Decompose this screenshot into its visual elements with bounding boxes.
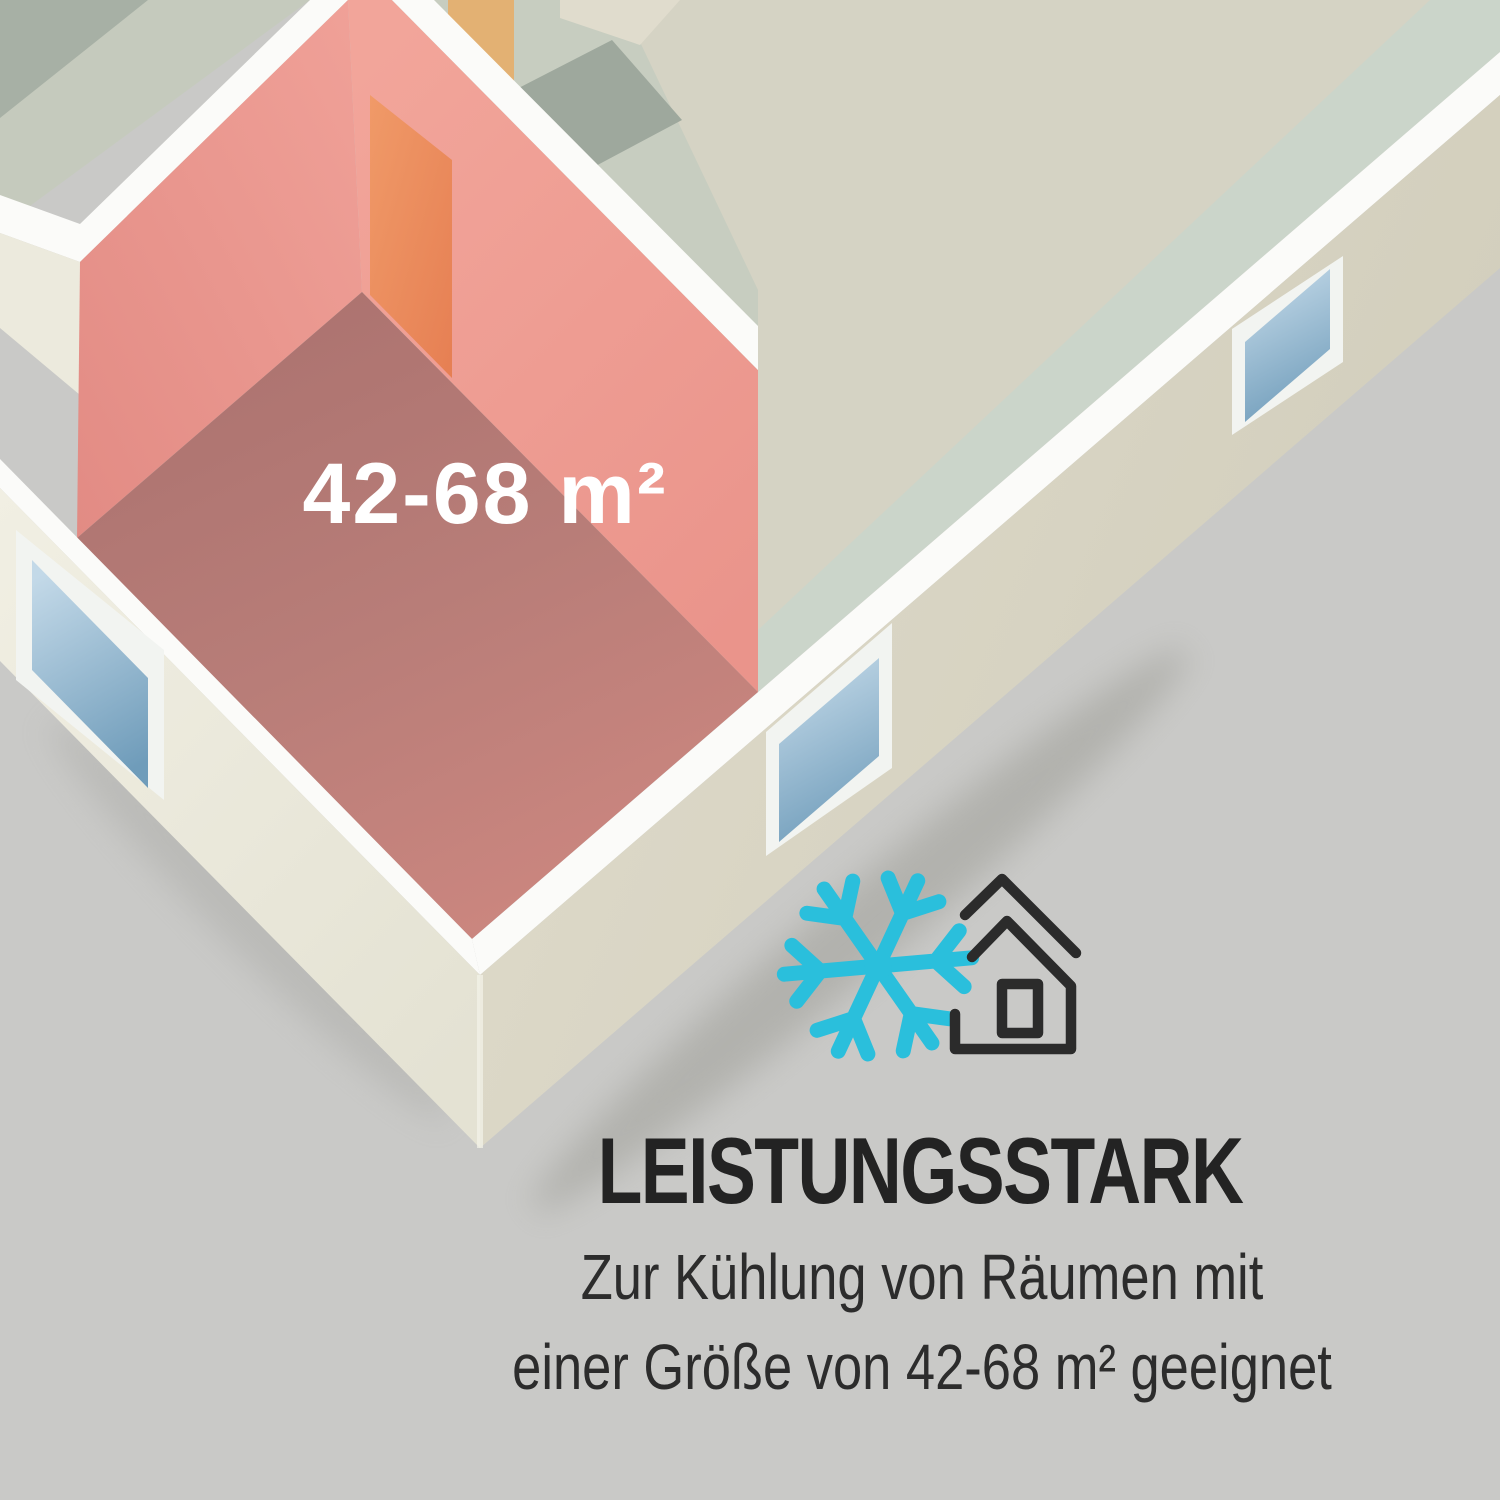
feature-heading: LEISTUNGSSTARK bbox=[452, 1120, 1388, 1222]
feature-description-line-1: Zur Kühlung von Räumen mit bbox=[430, 1243, 1414, 1312]
house-icon-door bbox=[1002, 984, 1038, 1033]
room-area-label: 42-68 m² bbox=[185, 448, 785, 541]
product-feature-image: 42-68 m² LEISTUNGSSTARK Zur Kühlung von … bbox=[0, 0, 1500, 1500]
feature-description-line-2: einer Größe von 42-68 m² geeignet bbox=[430, 1333, 1414, 1402]
